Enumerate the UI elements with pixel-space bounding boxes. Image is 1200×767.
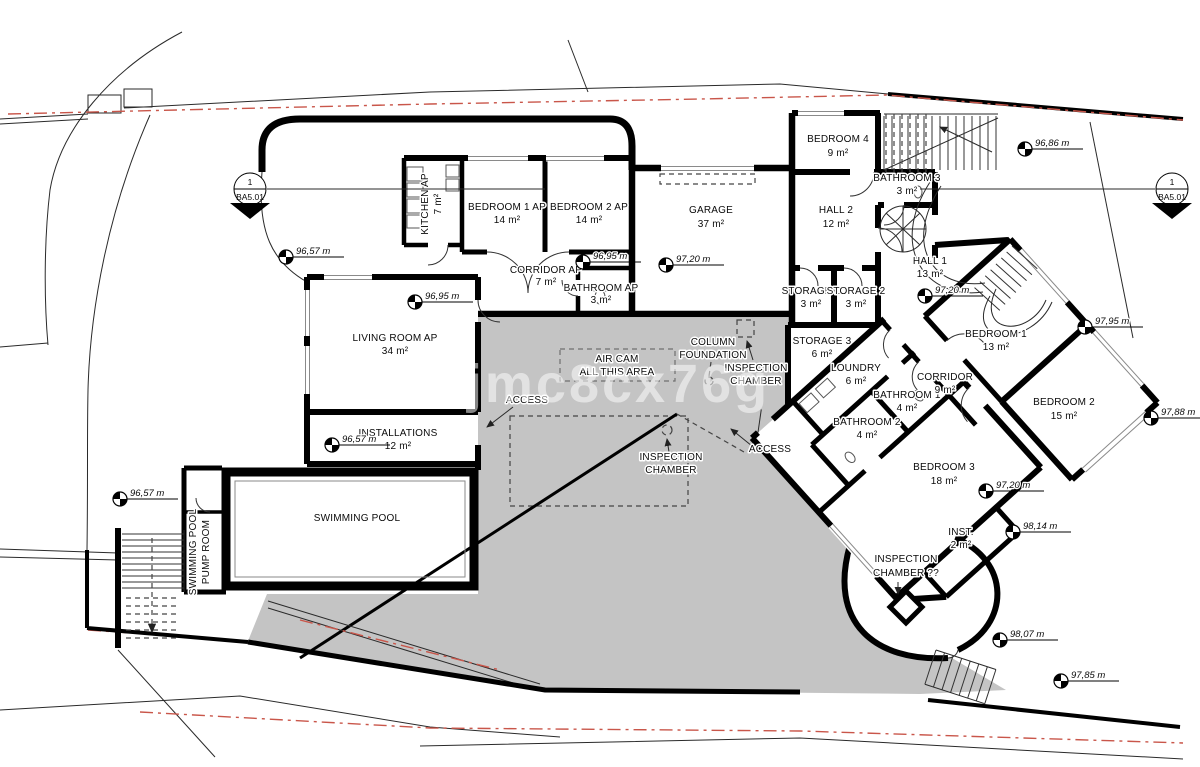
- room-label-loundry: LOUNDRY6 m²: [831, 363, 881, 387]
- fixtures: [407, 165, 922, 304]
- svg-text:KITCHEN AP: KITCHEN AP: [420, 173, 431, 235]
- svg-text:STORAGE 3: STORAGE 3: [793, 336, 852, 347]
- svg-text:BATHROOM AP: BATHROOM AP: [564, 283, 639, 294]
- svg-text:18 m²: 18 m²: [931, 476, 958, 487]
- room-label-bedroom4: BEDROOM 49 m²: [807, 134, 869, 159]
- room-label-bedroom1: BEDROOM 113 m²: [965, 329, 1027, 353]
- svg-text:13 m²: 13 m²: [917, 269, 944, 280]
- svg-text:LOUNDRY: LOUNDRY: [831, 363, 881, 374]
- svg-text:96,95 m: 96,95 m: [425, 291, 459, 302]
- svg-text:37 m²: 37 m²: [698, 219, 725, 230]
- svg-text:BA5.01: BA5.01: [236, 192, 264, 202]
- svg-text:BATHROOM 3: BATHROOM 3: [873, 173, 941, 184]
- terrace-wall: [262, 119, 632, 172]
- svg-text:97,85 m: 97,85 m: [1071, 670, 1105, 681]
- svg-text:BEDROOM 2 AP: BEDROOM 2 AP: [550, 202, 628, 213]
- elevation-marker: 96,57 m: [279, 246, 344, 264]
- room-label-garage: GARAGE37 m²: [689, 205, 733, 230]
- section-marker-left: 1 BA5.01: [230, 173, 270, 219]
- svg-text:BA5.01: BA5.01: [1158, 192, 1186, 202]
- elevation-marker: 97,20 m: [659, 254, 724, 272]
- svg-text:97,20 m: 97,20 m: [676, 254, 710, 265]
- room-label-living-room-ap: LIVING ROOM AP34 m²: [352, 333, 437, 357]
- elevation-marker: 97,20 m: [918, 285, 983, 303]
- room-label-bedroom1-ap: BEDROOM 1 AP14 m²: [468, 202, 546, 226]
- svg-text:98,07 m: 98,07 m: [1010, 629, 1044, 640]
- watermark: kjmc8cx76g: [434, 354, 770, 414]
- svg-text:4 m²: 4 m²: [857, 430, 878, 441]
- room-label-bathroom2: BATHROOM 24 m²: [833, 417, 901, 441]
- svg-text:6 m²: 6 m²: [812, 349, 833, 360]
- svg-text:7 m²: 7 m²: [536, 277, 557, 288]
- column-foundation-label: COLUMN: [691, 337, 736, 348]
- svg-text:3 m²: 3 m²: [591, 295, 612, 306]
- elevation-marker: 97,95 m: [1078, 316, 1143, 334]
- floor-plan-page: KITCHEN AP 7 m² BEDROOM 1 AP14 m² BEDROO…: [0, 0, 1200, 767]
- room-label-swimming-pool: SWIMMING POOL: [314, 513, 401, 524]
- elevation-marker: 98,07 m: [993, 629, 1058, 647]
- elevation-marker: 96,95 m: [408, 291, 473, 309]
- svg-text:HALL 2: HALL 2: [819, 205, 853, 216]
- svg-text:GARAGE: GARAGE: [689, 205, 733, 216]
- spiral-stair: [880, 206, 926, 252]
- svg-text:4 m²: 4 m²: [897, 403, 918, 414]
- svg-text:97,20 m: 97,20 m: [996, 480, 1030, 491]
- svg-text:97,20 m: 97,20 m: [935, 285, 969, 296]
- access-label-right: ACCESS: [749, 444, 791, 455]
- svg-text:98,14 m: 98,14 m: [1023, 521, 1057, 532]
- svg-text:BEDROOM 4: BEDROOM 4: [807, 134, 869, 145]
- boundary-red-line-bottom: [140, 712, 1183, 743]
- room-label-hall1: HALL 113 m²: [913, 256, 947, 280]
- svg-text:34 m²: 34 m²: [382, 346, 409, 357]
- elevation-marker: 96,86 m: [1018, 138, 1083, 156]
- svg-text:1: 1: [248, 177, 253, 187]
- room-label-bedroom2: BEDROOM 215 m²: [1033, 397, 1095, 422]
- svg-text:3 m²: 3 m²: [897, 186, 918, 197]
- svg-text:STORAGE 2: STORAGE 2: [827, 286, 886, 297]
- svg-text:7 m²: 7 m²: [433, 193, 444, 214]
- room-label-hall2: HALL 212 m²: [819, 205, 853, 230]
- svg-text:BEDROOM 3: BEDROOM 3: [913, 462, 975, 473]
- svg-text:PUMP ROOM: PUMP ROOM: [201, 520, 212, 584]
- svg-text:14 m²: 14 m²: [576, 215, 603, 226]
- svg-text:14 m²: 14 m²: [494, 215, 521, 226]
- svg-text:BEDROOM 1 AP: BEDROOM 1 AP: [468, 202, 546, 213]
- svg-text:SWIMMING POOL: SWIMMING POOL: [314, 513, 401, 524]
- svg-text:CHAMBER ??: CHAMBER ??: [873, 568, 939, 579]
- elevation-marker: 96,57 m: [113, 488, 178, 506]
- room-label-bathroom3: BATHROOM 33 m²: [873, 173, 941, 197]
- svg-text:12 m²: 12 m²: [385, 441, 412, 452]
- svg-text:INST.: INST.: [948, 527, 973, 538]
- room-label-bedroom3: BEDROOM 318 m²: [913, 462, 975, 487]
- stairs-top-right: [884, 114, 998, 172]
- stairs-left: [122, 530, 184, 638]
- room-label-bathroom-ap: BATHROOM AP3 m²: [564, 283, 639, 306]
- svg-text:BATHROOM 2: BATHROOM 2: [833, 417, 901, 428]
- svg-text:6 m²: 6 m²: [846, 376, 867, 387]
- svg-text:9 m²: 9 m²: [828, 148, 849, 159]
- svg-text:BEDROOM 2: BEDROOM 2: [1033, 397, 1095, 408]
- svg-text:96,57 m: 96,57 m: [296, 246, 330, 257]
- elevation-marker: 97,85 m: [1054, 670, 1119, 688]
- svg-text:LIVING ROOM AP: LIVING ROOM AP: [352, 333, 437, 344]
- svg-text:97,95 m: 97,95 m: [1095, 316, 1129, 327]
- floor-plan-drawing: KITCHEN AP 7 m² BEDROOM 1 AP14 m² BEDROO…: [0, 0, 1200, 767]
- room-label-pump-room: SWIMMING POOL PUMP ROOM: [188, 509, 212, 596]
- svg-text:15 m²: 15 m²: [1051, 411, 1078, 422]
- svg-text:96,86 m: 96,86 m: [1035, 138, 1069, 149]
- svg-text:HALL 1: HALL 1: [913, 256, 947, 267]
- svg-text:CORRIDOR: CORRIDOR: [917, 372, 973, 383]
- svg-text:97,88 m: 97,88 m: [1161, 407, 1195, 418]
- svg-text:13 m²: 13 m²: [983, 342, 1010, 353]
- elevation-marker: 98,14 m: [1006, 521, 1071, 539]
- svg-text:96,57 m: 96,57 m: [130, 488, 164, 499]
- svg-text:CORRIDOR AP: CORRIDOR AP: [510, 265, 582, 276]
- hall1-ne-wall: [935, 240, 1008, 245]
- svg-text:12 m²: 12 m²: [823, 219, 850, 230]
- svg-text:SWIMMING POOL: SWIMMING POOL: [188, 509, 199, 596]
- inspection-chamber-label-lower: INSPECTION: [639, 452, 702, 463]
- svg-text:9 m²: 9 m²: [935, 385, 956, 396]
- room-label-kitchen-ap: KITCHEN AP 7 m²: [420, 173, 444, 235]
- svg-text:BEDROOM 1: BEDROOM 1: [965, 329, 1027, 340]
- room-label-bedroom2-ap: BEDROOM 2 AP14 m²: [550, 202, 628, 226]
- svg-text:CHAMBER: CHAMBER: [645, 465, 696, 476]
- inspection-chamber-label-q: INSPECTION: [874, 554, 937, 565]
- svg-text:1: 1: [1170, 177, 1175, 187]
- svg-text:96,57 m: 96,57 m: [342, 434, 376, 445]
- svg-text:2 m²: 2 m²: [951, 540, 972, 551]
- svg-text:3 m²: 3 m²: [846, 299, 867, 310]
- section-marker-right: 1 BA5.01: [1152, 173, 1192, 219]
- svg-text:BATHROOM 1: BATHROOM 1: [873, 390, 941, 401]
- svg-text:96,95 m: 96,95 m: [593, 251, 627, 262]
- svg-text:3 m²: 3 m²: [801, 299, 822, 310]
